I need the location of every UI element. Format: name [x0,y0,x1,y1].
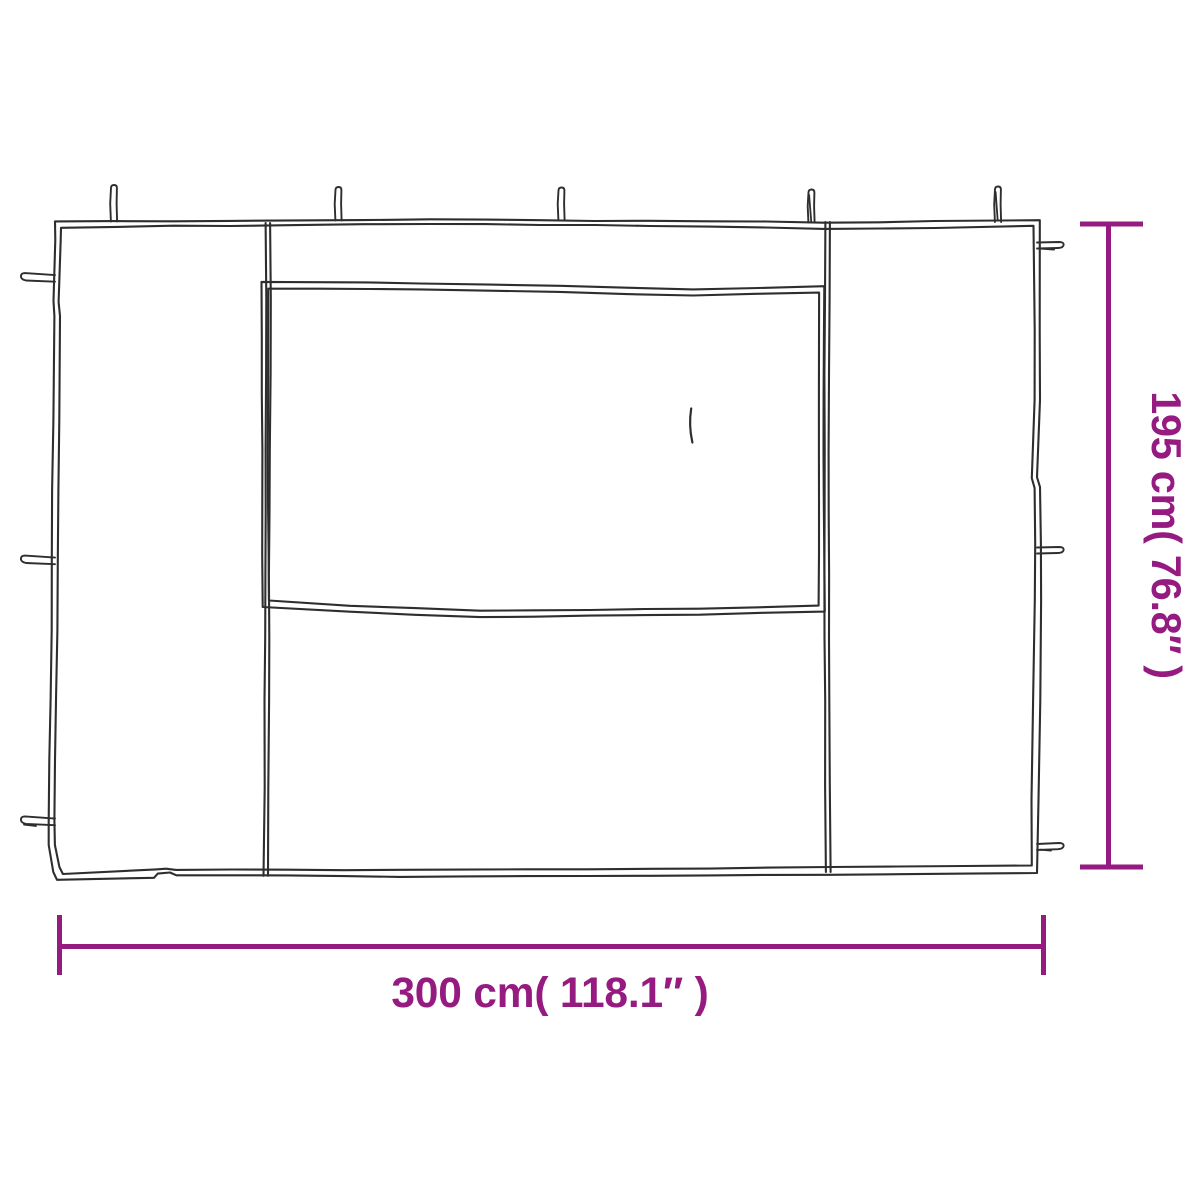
svg-text:195 cm( 76.8″ ): 195 cm( 76.8″ ) [1143,391,1190,679]
svg-text:300 cm( 118.1″ ): 300 cm( 118.1″ ) [391,970,708,1017]
